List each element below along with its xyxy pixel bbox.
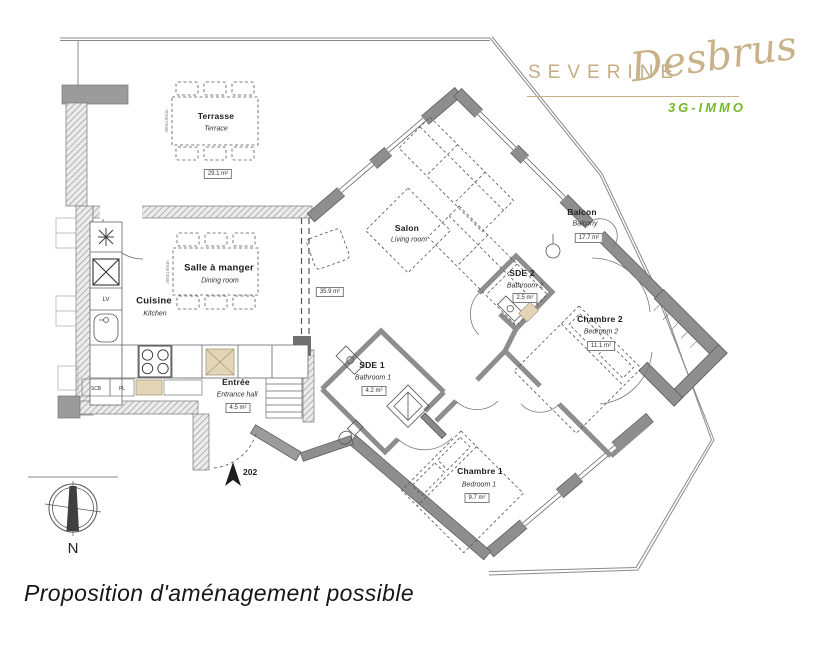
logo-underline	[527, 96, 739, 97]
bedroom2-bed	[514, 306, 641, 433]
floor-plan-page: 300x190cm 300x190cm	[0, 0, 833, 650]
room-label-terrasse: Terrasse	[198, 111, 234, 121]
room-label-sde1: SDE 1	[359, 360, 385, 370]
kitchen-dishwasher-label: LV	[103, 297, 110, 303]
bedroom2-closet	[611, 289, 728, 406]
open-space-divider	[293, 218, 311, 356]
room-sublabel-terrasse: Terrace	[204, 126, 227, 133]
terrace-table-size-label: 300x190cm	[164, 109, 169, 133]
plan-caption: Proposition d'aménagement possible	[24, 580, 414, 607]
room-label-chambre2: Chambre 2	[577, 314, 623, 324]
compass-needle	[67, 486, 80, 531]
room-sublabel-sde1: Bathroom 1	[355, 375, 391, 382]
room-area-sde2: 2.5 m²	[512, 293, 537, 303]
common-area-fixtures	[56, 218, 78, 390]
room-sublabel-chambre1: Bedroom 1	[462, 482, 496, 489]
room-sublabel-sde2: Bathroom 2	[507, 283, 543, 290]
salon-northwest-wall	[306, 86, 463, 223]
room-area-chambre2: 11.1 m²	[587, 341, 615, 351]
room-area-sde1: 4.2 m²	[361, 386, 386, 396]
kitchen-counter	[90, 222, 308, 405]
room-label-chambre1: Chambre 1	[457, 466, 503, 476]
room-label-cuisine: Cuisine	[136, 296, 172, 307]
terrace-door-opening	[100, 204, 142, 220]
room-area-entree: 4.5 m²	[225, 403, 250, 413]
room-label-salon: Salon	[395, 223, 419, 233]
room-area-chambre1: 9.7 m²	[464, 493, 489, 503]
room-label-entree: Entrée	[222, 377, 250, 387]
logo-brand: 3G-IMMO	[630, 100, 746, 115]
room-sublabel-entree: Entrance hall	[217, 392, 258, 399]
unit-entrance-marker	[225, 462, 241, 486]
kitchen-scb-label: SCB	[91, 386, 102, 392]
interior-walls	[322, 256, 648, 456]
room-area-balcon: 17.7 m²	[575, 233, 603, 243]
bedroom1-southeast-wall	[486, 412, 655, 558]
entrance-door-arc	[214, 431, 257, 468]
room-label-dining: Salle à manger	[184, 263, 254, 274]
compass	[28, 477, 118, 536]
terrace-railing	[60, 38, 490, 86]
room-area-salon: 35.9 m²	[316, 287, 344, 297]
room-label-sde2: SDE 2	[509, 268, 535, 278]
kitchen-pl-label: PL	[119, 386, 125, 392]
room-sublabel-salon: Living room	[391, 237, 427, 244]
room-sublabel-dining: Dining room	[201, 278, 239, 285]
southwest-wall	[250, 425, 490, 560]
room-area-terrasse: 29.1 m²	[204, 169, 232, 179]
balcony-table	[546, 234, 560, 258]
compass-north-label: N	[68, 540, 79, 557]
room-sublabel-cuisine: Kitchen	[143, 311, 166, 318]
fridge-box	[206, 349, 234, 375]
unit-number-label: 202	[243, 467, 257, 477]
dining-table-size-label: 300x190cm	[165, 260, 170, 284]
floor-plan-drawing: 300x190cm 300x190cm	[0, 0, 833, 650]
room-label-balcon: Balcon	[567, 207, 597, 217]
terrace-dining-set	[172, 82, 258, 160]
room-sublabel-chambre2: Bedroom 2	[584, 329, 618, 336]
room-sublabel-balcon: Balcony	[573, 221, 598, 228]
